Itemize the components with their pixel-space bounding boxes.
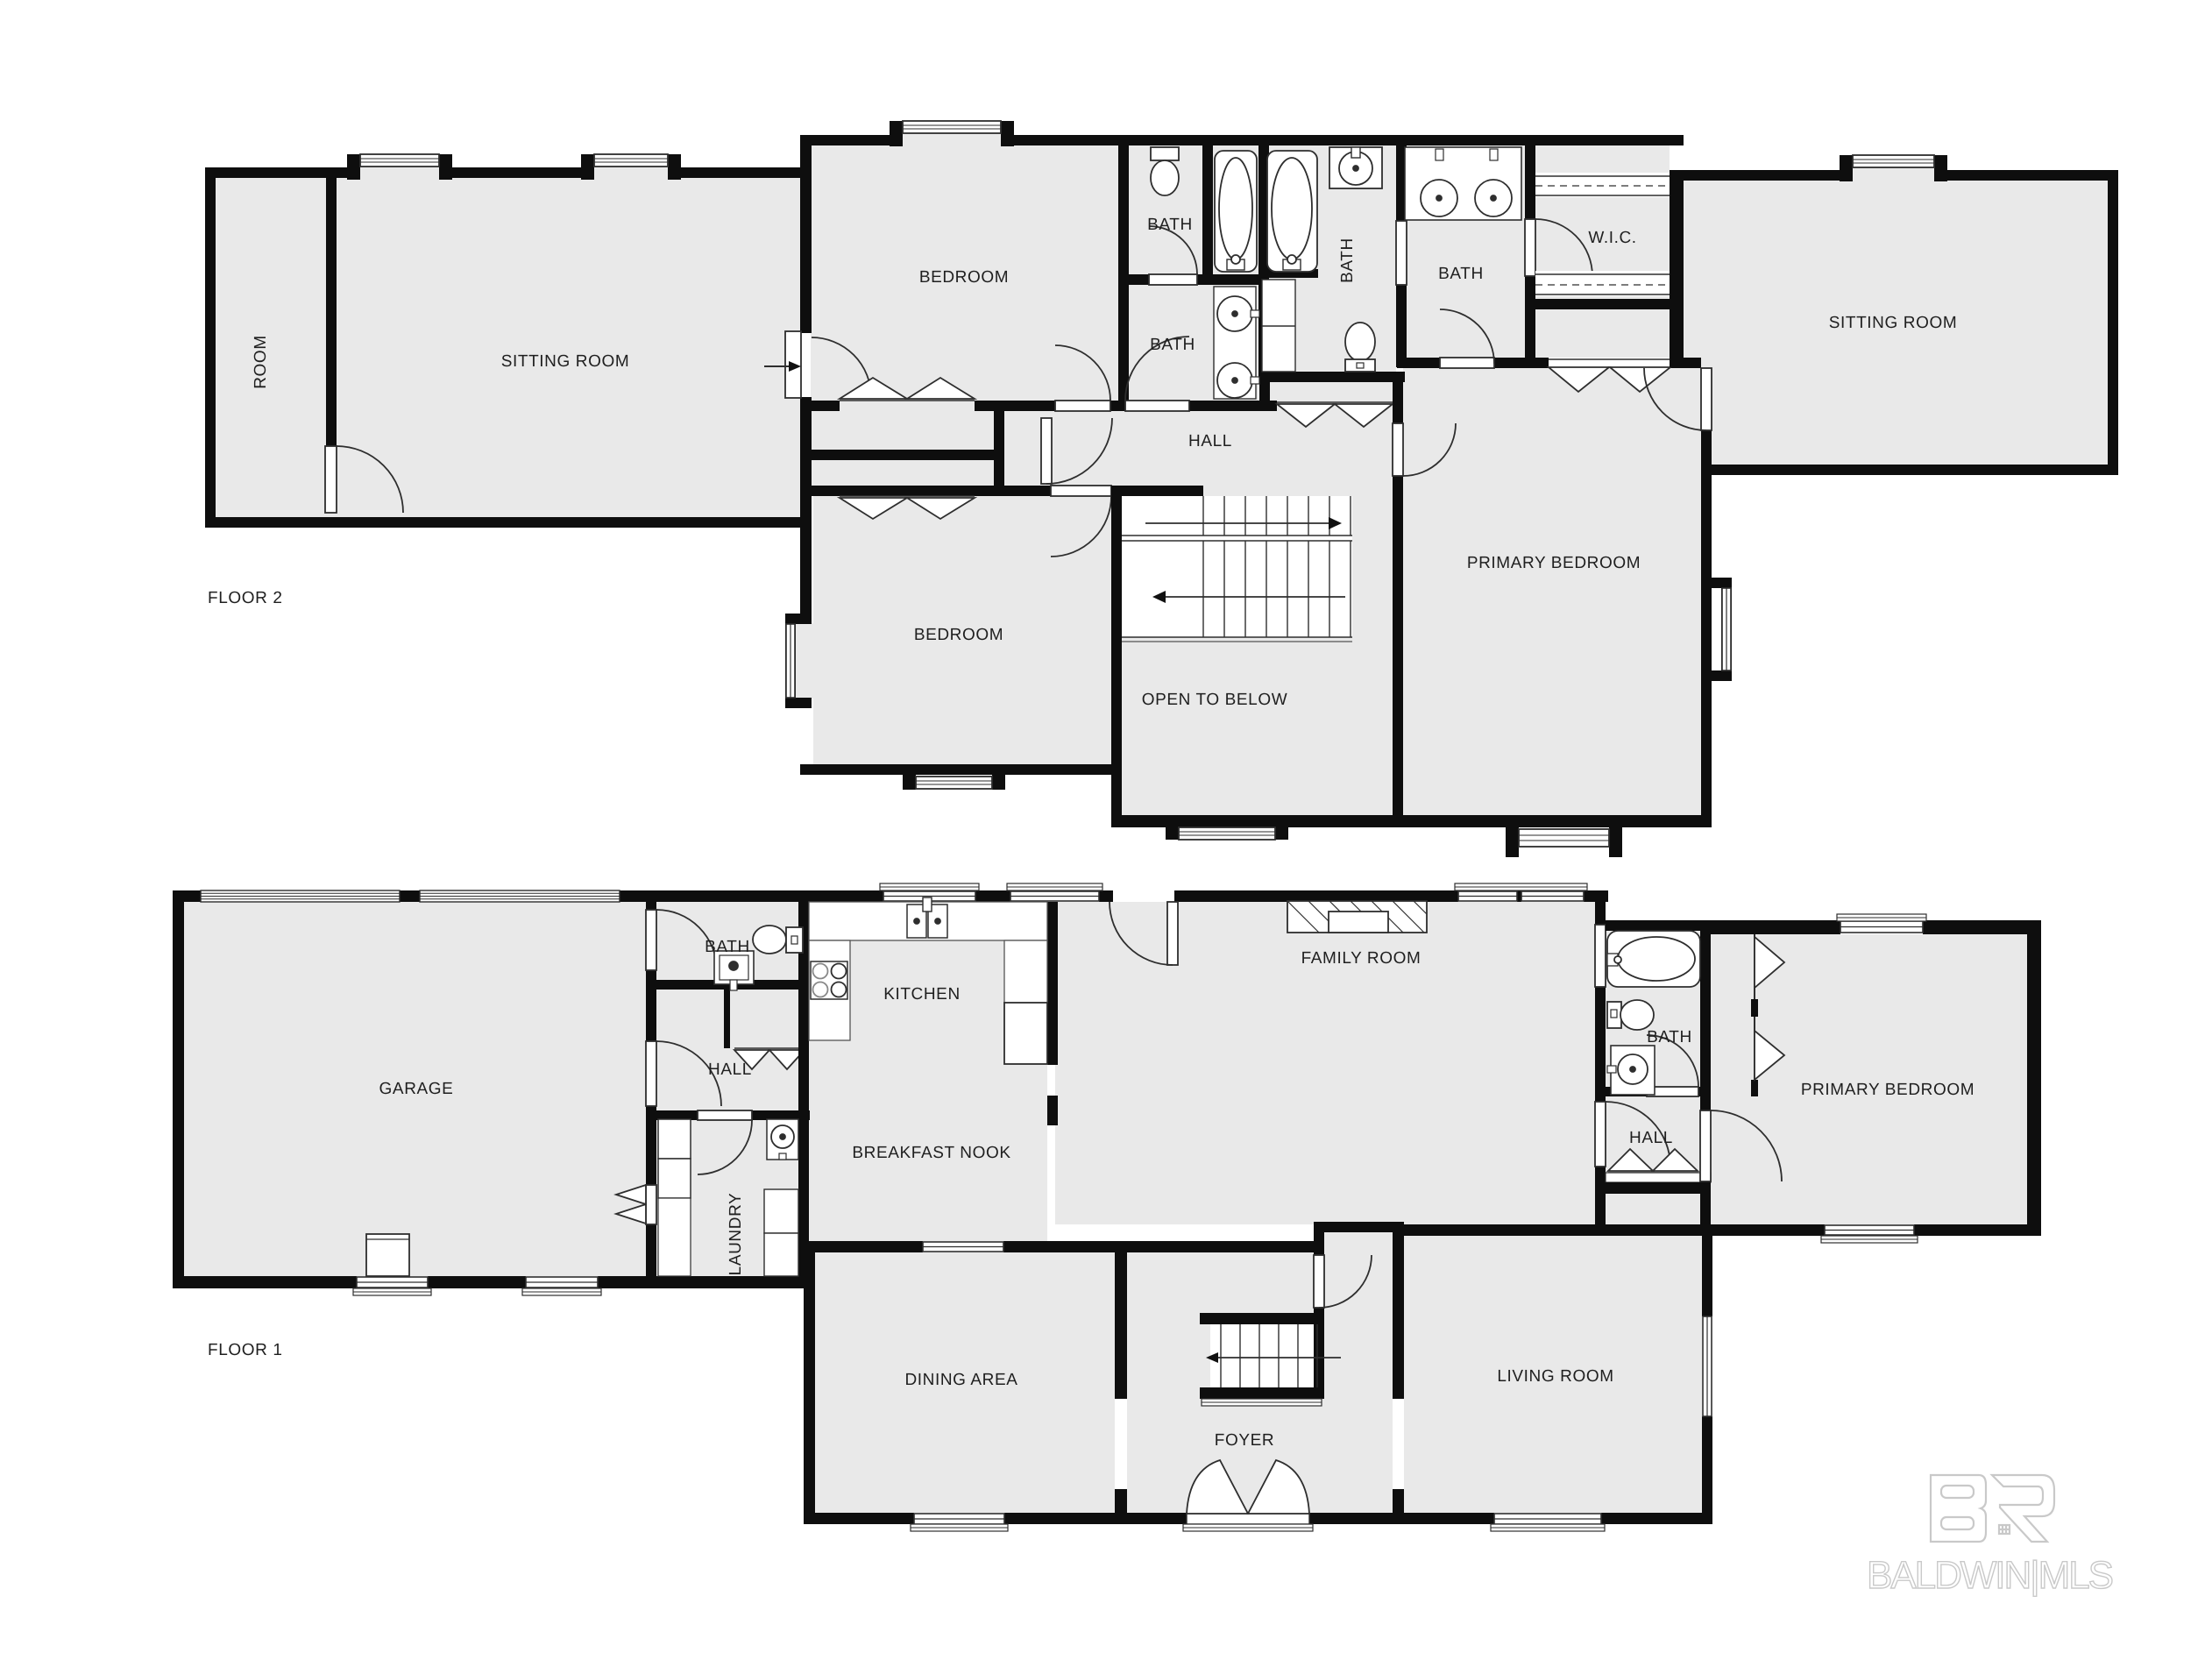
svg-text:BREAKFAST NOOK: BREAKFAST NOOK [852, 1144, 1010, 1162]
svg-text:ROOM: ROOM [252, 335, 270, 389]
svg-text:HALL: HALL [708, 1061, 752, 1079]
svg-text:BATH: BATH [705, 938, 750, 956]
svg-text:PRIMARY BEDROOM: PRIMARY BEDROOM [1801, 1081, 1974, 1099]
svg-text:BATH: BATH [1647, 1028, 1692, 1046]
svg-text:LAUNDRY: LAUNDRY [727, 1193, 745, 1276]
svg-text:KITCHEN: KITCHEN [883, 985, 961, 1004]
svg-text:DINING AREA: DINING AREA [904, 1371, 1017, 1389]
svg-text:HALL: HALL [1188, 432, 1232, 450]
svg-text:PRIMARY BEDROOM: PRIMARY BEDROOM [1467, 554, 1641, 572]
svg-text:BALDWIN|MLS: BALDWIN|MLS [1867, 1554, 2115, 1597]
svg-text:SITTING ROOM: SITTING ROOM [501, 352, 630, 371]
svg-text:FLOOR 2: FLOOR 2 [208, 589, 283, 607]
svg-text:BEDROOM: BEDROOM [919, 268, 1009, 287]
svg-text:BATH: BATH [1147, 216, 1193, 234]
svg-text:FAMILY ROOM: FAMILY ROOM [1301, 949, 1421, 968]
svg-text:HALL: HALL [1629, 1129, 1673, 1147]
svg-text:LIVING ROOM: LIVING ROOM [1497, 1367, 1613, 1386]
svg-text:OPEN TO BELOW: OPEN TO BELOW [1142, 691, 1288, 709]
svg-text:BATH: BATH [1338, 238, 1357, 283]
svg-text:GARAGE: GARAGE [379, 1080, 454, 1098]
svg-text:SITTING ROOM: SITTING ROOM [1829, 314, 1958, 332]
svg-text:BATH: BATH [1150, 336, 1195, 354]
svg-text:BEDROOM: BEDROOM [914, 626, 1003, 644]
svg-text:W.I.C.: W.I.C. [1588, 229, 1636, 247]
svg-text:FOYER: FOYER [1215, 1431, 1274, 1450]
svg-text:FLOOR 1: FLOOR 1 [208, 1341, 283, 1359]
svg-text:BATH: BATH [1438, 265, 1484, 283]
